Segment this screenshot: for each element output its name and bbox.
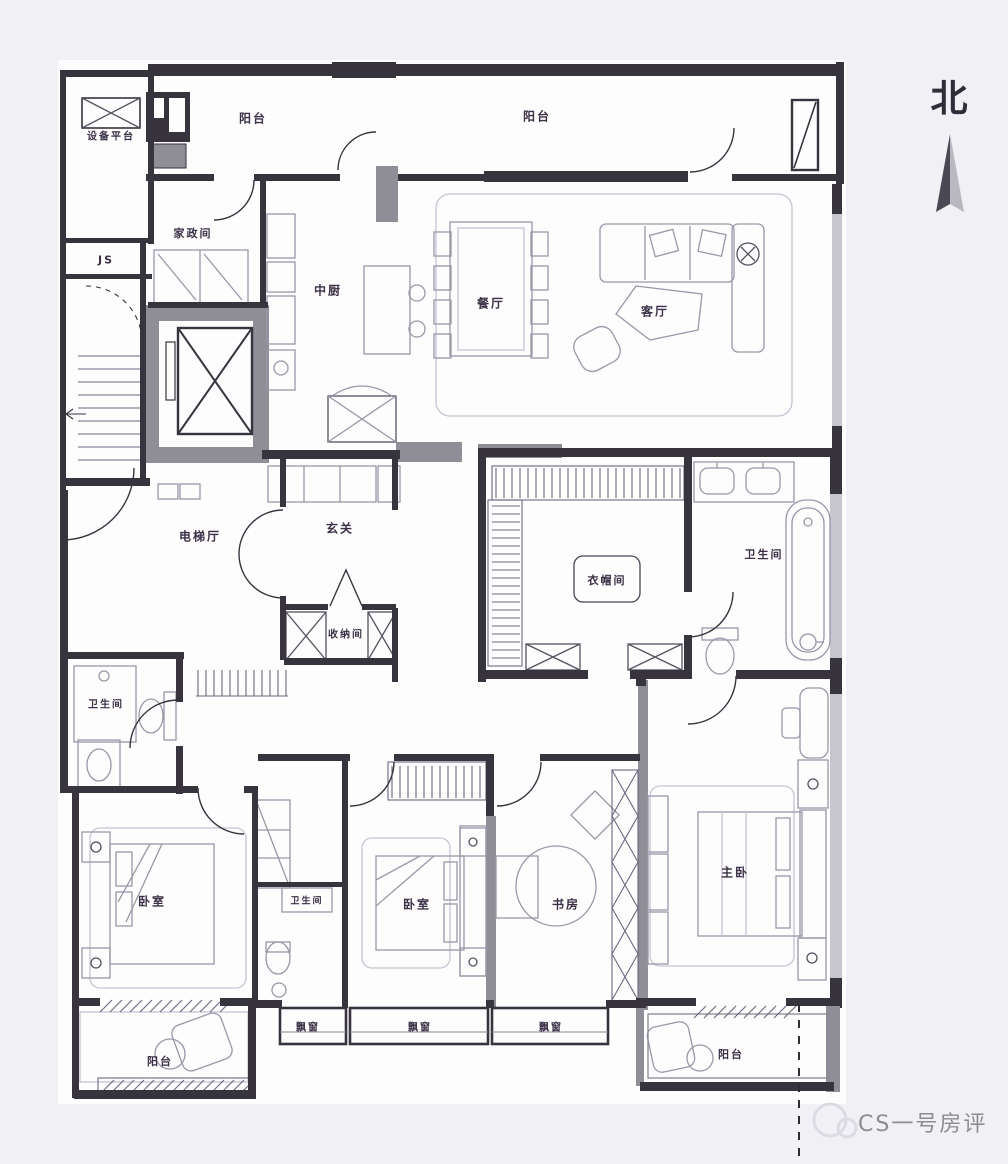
floor-plan-page: 设备平台阳台阳台家政间JS中厨餐厅客厅电梯厅玄关收纳间衣帽间卫生间卫生间卧室卫生… bbox=[0, 0, 1008, 1164]
watermark-text: CS一号房评 bbox=[858, 1106, 987, 1138]
north-label: 北 bbox=[926, 68, 972, 122]
balcony-window-icon bbox=[792, 100, 818, 170]
north-arrow-icon bbox=[936, 134, 964, 212]
watermark-logo-icon bbox=[814, 1104, 856, 1137]
plan-paper bbox=[58, 60, 846, 1104]
elevator-icon bbox=[166, 328, 252, 434]
floor-plan-drawing bbox=[0, 0, 1008, 1164]
